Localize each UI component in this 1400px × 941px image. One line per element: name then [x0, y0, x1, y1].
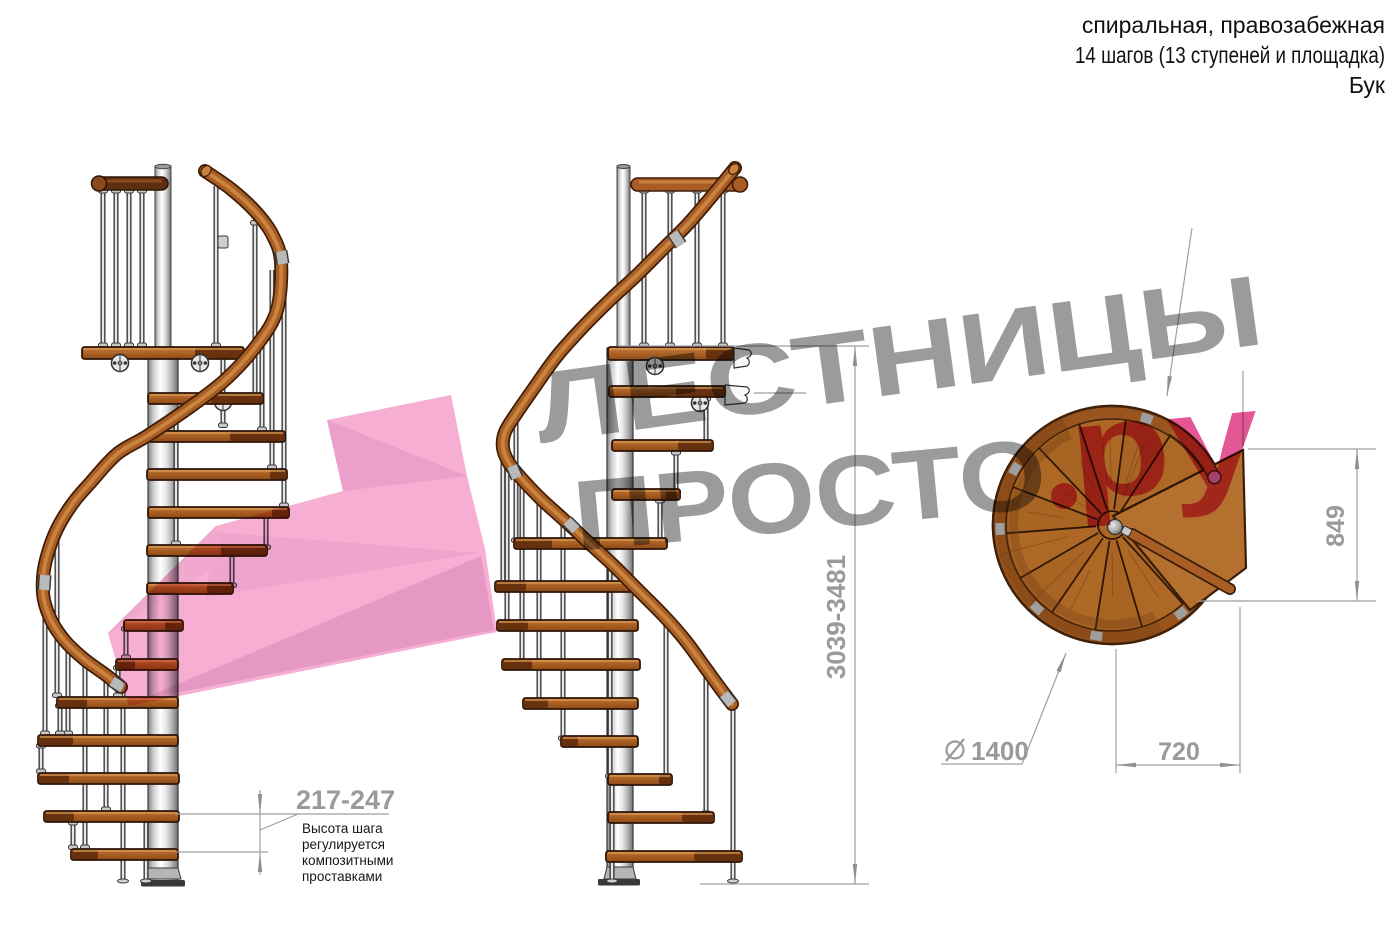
svg-text:ру: ру: [1063, 360, 1266, 529]
svg-text:849: 849: [1322, 505, 1350, 547]
svg-text:регулируется: регулируется: [302, 837, 385, 852]
svg-text:Высота шага: Высота шага: [302, 821, 383, 836]
svg-text:720: 720: [1158, 738, 1200, 766]
svg-text:Бук: Бук: [1349, 72, 1386, 98]
svg-text:217-247: 217-247: [296, 785, 395, 815]
svg-text:14 шагов (13 ступеней и площад: 14 шагов (13 ступеней и площадка): [1075, 42, 1385, 68]
svg-text:композитными: композитными: [302, 853, 393, 868]
svg-text:спиральная, правозабежная: спиральная, правозабежная: [1082, 12, 1385, 38]
svg-text:3039-3481: 3039-3481: [821, 555, 851, 679]
svg-text:проставками: проставками: [302, 869, 382, 884]
svg-text:1400: 1400: [971, 736, 1029, 766]
